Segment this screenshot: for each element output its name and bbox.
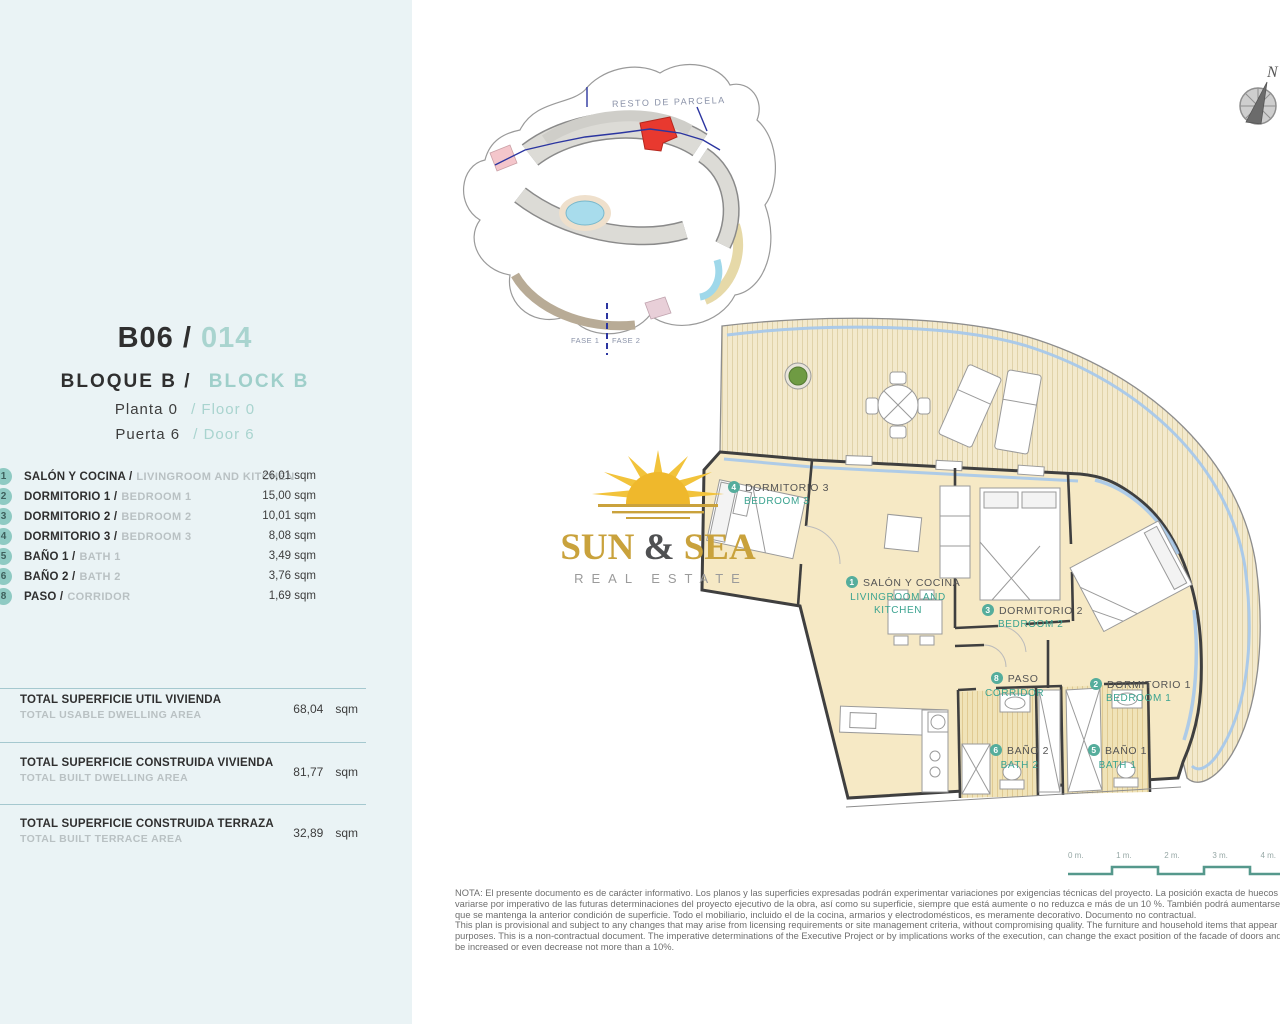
room-name-es: PASO / (24, 591, 63, 603)
total-value: 68,04sqm (293, 702, 358, 716)
total-value: 32,89sqm (293, 826, 358, 840)
divider (0, 688, 366, 689)
room-number-badge: 8 (0, 588, 12, 605)
north-compass-icon (1234, 76, 1280, 138)
scale-bar-labels: 0 m. 1 m. 2 m. 3 m. 4 m. (1068, 851, 1276, 860)
total-built-terrace-area: TOTAL SUPERFICIE CONSTRUIDA TERRAZA TOTA… (20, 818, 366, 845)
unit-header: B06 / 014 BLOQUE B / BLOCK B Planta 0 / … (0, 322, 370, 443)
fase-1-label: FASE 1 (571, 336, 599, 345)
room-name-en: BEDROOM 3 (121, 531, 191, 543)
floor-plan-document-page: B06 / 014 BLOQUE B / BLOCK B Planta 0 / … (0, 0, 1280, 1024)
plan-room-badge: 3 (982, 604, 994, 616)
plan-label-dormitorio-3: 4DORMITORIO 3 BEDROOM 3 (728, 481, 829, 507)
total-number: 68,04 (293, 702, 323, 716)
plan-room-name-es: BAÑO 2 (1007, 745, 1049, 757)
room-area-list: 1 SALÓN Y COCINA /LIVINGROOM AND KITCHEN… (0, 466, 370, 606)
plan-room-badge: 5 (1088, 744, 1100, 756)
plan-room-badge: 1 (846, 576, 858, 588)
room-name-en: BEDROOM 2 (121, 511, 191, 523)
plan-room-name-es: BAÑO 1 (1105, 745, 1147, 757)
room-name-en: CORRIDOR (67, 591, 130, 603)
total-unit: sqm (335, 765, 358, 779)
block-line: BLOQUE B / BLOCK B (0, 371, 370, 393)
list-item: 4 DORMITORIO 3 /BEDROOM 3 8,08 sqm (0, 526, 370, 546)
room-name-es: DORMITORIO 2 / (24, 511, 117, 523)
logo-subtitle: REAL ESTATE (558, 571, 764, 586)
list-item: 6 BAÑO 2 /BATH 2 3,76 sqm (0, 566, 370, 586)
disclaimer-note: NOTA: El presente documento es de caráct… (455, 888, 1280, 953)
room-number-badge: 5 (0, 548, 12, 565)
block-es: BLOQUE B / (61, 371, 192, 392)
disclaimer-spanish: NOTA: El presente documento es de caráct… (455, 888, 1280, 920)
room-name-es: DORMITORIO 1 / (24, 491, 117, 503)
room-name-en: BATH 1 (79, 551, 120, 563)
divider (0, 804, 366, 805)
door-line: Puerta 6 / Door 6 (0, 426, 370, 443)
fase-2-label: FASE 2 (612, 336, 640, 345)
total-number: 32,89 (293, 826, 323, 840)
scale-tick-label: 4 m. (1260, 851, 1276, 860)
room-number-badge: 1 (0, 468, 12, 485)
room-area-value: 8,08 sqm (269, 526, 316, 546)
apartment-floor-plan (700, 310, 1280, 890)
block-en: BLOCK B (209, 371, 310, 392)
disclaimer-english: This plan is provisional and subject to … (455, 920, 1280, 952)
room-number-badge: 3 (0, 508, 12, 525)
room-area-value: 26,01 sqm (262, 466, 316, 486)
total-usable-area: TOTAL SUPERFICIE UTIL VIVIENDA TOTAL USA… (20, 694, 366, 721)
plan-room-name-en: BEDROOM 1 (1106, 693, 1191, 704)
room-area-value: 1,69 sqm (269, 586, 316, 606)
room-name-es: SALÓN Y COCINA / (24, 471, 132, 483)
site-location-plan (435, 45, 785, 355)
floor-en: / Floor 0 (191, 401, 255, 418)
list-item: 5 BAÑO 1 /BATH 1 3,49 sqm (0, 546, 370, 566)
plan-room-name-en: LIVINGROOM AND KITCHEN (846, 591, 950, 617)
plan-room-name-es: DORMITORIO 2 (999, 605, 1083, 617)
plan-room-name-en: BATH 1 (1088, 759, 1147, 772)
plan-room-badge: 8 (991, 672, 1003, 684)
plan-room-badge: 2 (1090, 678, 1102, 690)
scale-tick-label: 1 m. (1116, 851, 1132, 860)
plan-label-dormitorio-1: 2DORMITORIO 1 BEDROOM 1 (1090, 678, 1191, 704)
plan-room-name-es: PASO (1008, 673, 1039, 685)
scale-tick-label: 0 m. (1068, 851, 1084, 860)
logo-name: SUN & SEA (552, 529, 764, 567)
total-number: 81,77 (293, 765, 323, 779)
room-number-badge: 6 (0, 568, 12, 585)
room-name-es: BAÑO 2 / (24, 571, 75, 583)
plan-room-name-en: CORRIDOR (985, 687, 1044, 700)
floor-es: Planta 0 (115, 401, 178, 418)
room-name-es: DORMITORIO 3 / (24, 531, 117, 543)
total-built-dwelling-area: TOTAL SUPERFICIE CONSTRUIDA VIVIENDA TOT… (20, 757, 366, 784)
room-name-en: BATH 2 (79, 571, 120, 583)
room-name-es: BAÑO 1 / (24, 551, 75, 563)
plan-room-name-en: BEDROOM 3 (744, 496, 829, 507)
plan-label-paso: 8PASO CORRIDOR (985, 672, 1044, 700)
plan-room-name-en: BATH 2 (990, 759, 1049, 772)
north-label: N (1267, 64, 1278, 82)
total-unit: sqm (335, 826, 358, 840)
plan-room-name-es: DORMITORIO 1 (1107, 679, 1191, 691)
unit-code: B06 / (118, 322, 192, 354)
room-name-en: BEDROOM 1 (121, 491, 191, 503)
plan-label-dormitorio-2: 3DORMITORIO 2 BEDROOM 2 (982, 604, 1083, 630)
plan-label-bano-2: 6BAÑO 2 BATH 2 (990, 744, 1049, 772)
list-item: 2 DORMITORIO 1 /BEDROOM 1 15,00 sqm (0, 486, 370, 506)
room-area-value: 3,76 sqm (269, 566, 316, 586)
sun-and-sea-logo: SUN & SEA REAL ESTATE (552, 448, 764, 586)
logo-name-right: SEA (674, 527, 755, 568)
unit-number: 014 (201, 322, 252, 354)
sidebar: B06 / 014 BLOQUE B / BLOCK B Planta 0 / … (0, 0, 412, 1024)
logo-name-left: SUN (560, 527, 643, 568)
plan-room-badge: 6 (990, 744, 1002, 756)
plan-room-name-es: DORMITORIO 3 (745, 482, 829, 494)
total-unit: sqm (335, 702, 358, 716)
room-number-badge: 2 (0, 488, 12, 505)
plan-room-badge: 4 (728, 481, 740, 493)
list-item: 8 PASO /CORRIDOR 1,69 sqm (0, 586, 370, 606)
scale-tick-label: 2 m. (1164, 851, 1180, 860)
plan-label-salon-cocina: 1SALÓN Y COCINA LIVINGROOM AND KITCHEN (846, 576, 960, 617)
room-area-value: 3,49 sqm (269, 546, 316, 566)
room-number-badge: 4 (0, 528, 12, 545)
plan-room-name-es: SALÓN Y COCINA (863, 577, 960, 589)
door-es: Puerta 6 (115, 426, 180, 443)
list-item: 3 DORMITORIO 2 /BEDROOM 2 10,01 sqm (0, 506, 370, 526)
room-area-value: 10,01 sqm (262, 506, 316, 526)
unit-id: B06 / 014 (0, 322, 370, 355)
room-area-value: 15,00 sqm (262, 486, 316, 506)
door-en: / Door 6 (193, 426, 254, 443)
total-value: 81,77sqm (293, 765, 358, 779)
floor-line: Planta 0 / Floor 0 (0, 401, 370, 418)
list-item: 1 SALÓN Y COCINA /LIVINGROOM AND KITCHEN… (0, 466, 370, 486)
scale-tick-label: 3 m. (1212, 851, 1228, 860)
divider (0, 742, 366, 743)
plan-room-name-en: BEDROOM 2 (998, 619, 1083, 630)
plan-label-bano-1: 5BAÑO 1 BATH 1 (1088, 744, 1147, 772)
logo-ampersand: & (644, 527, 675, 568)
